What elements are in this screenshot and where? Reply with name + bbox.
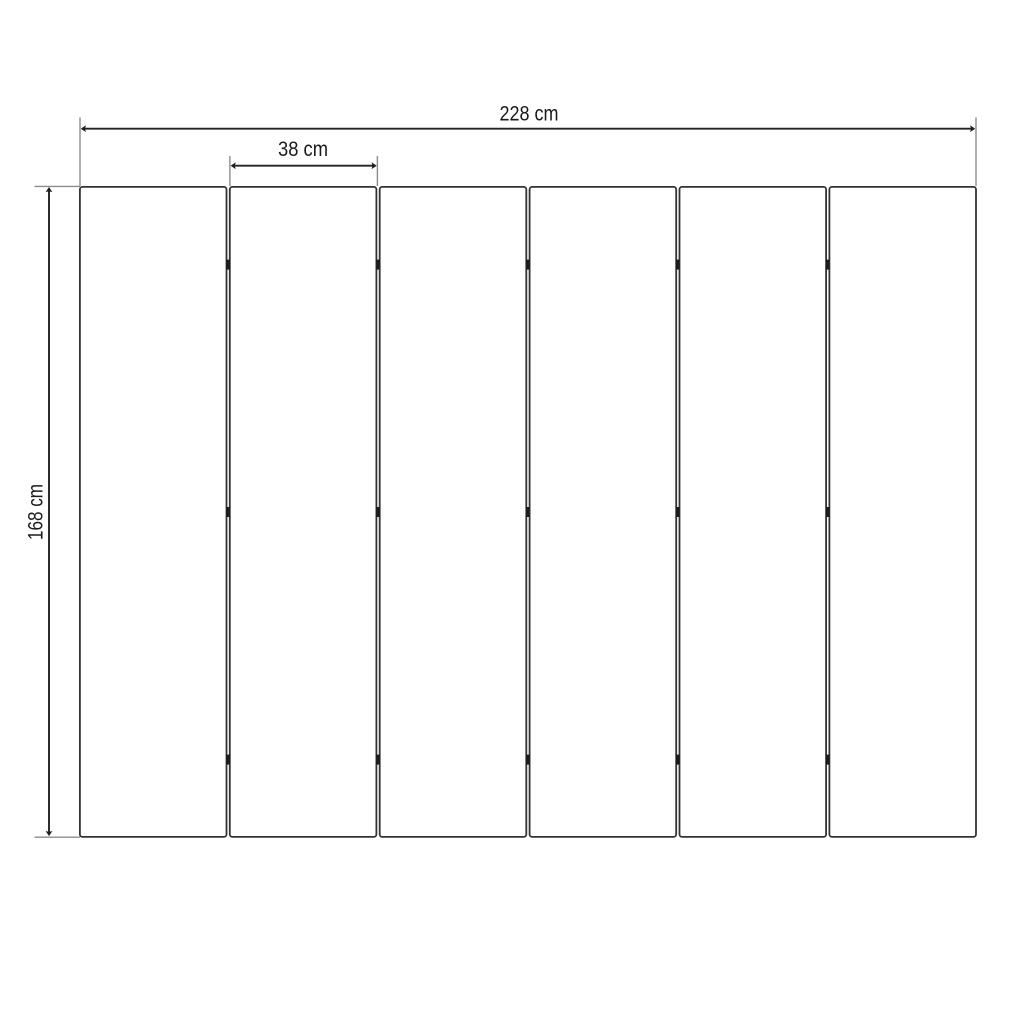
svg-text:38 cm: 38 cm bbox=[278, 138, 328, 161]
svg-text:168 cm: 168 cm bbox=[25, 484, 48, 540]
svg-text:228 cm: 228 cm bbox=[500, 102, 559, 125]
